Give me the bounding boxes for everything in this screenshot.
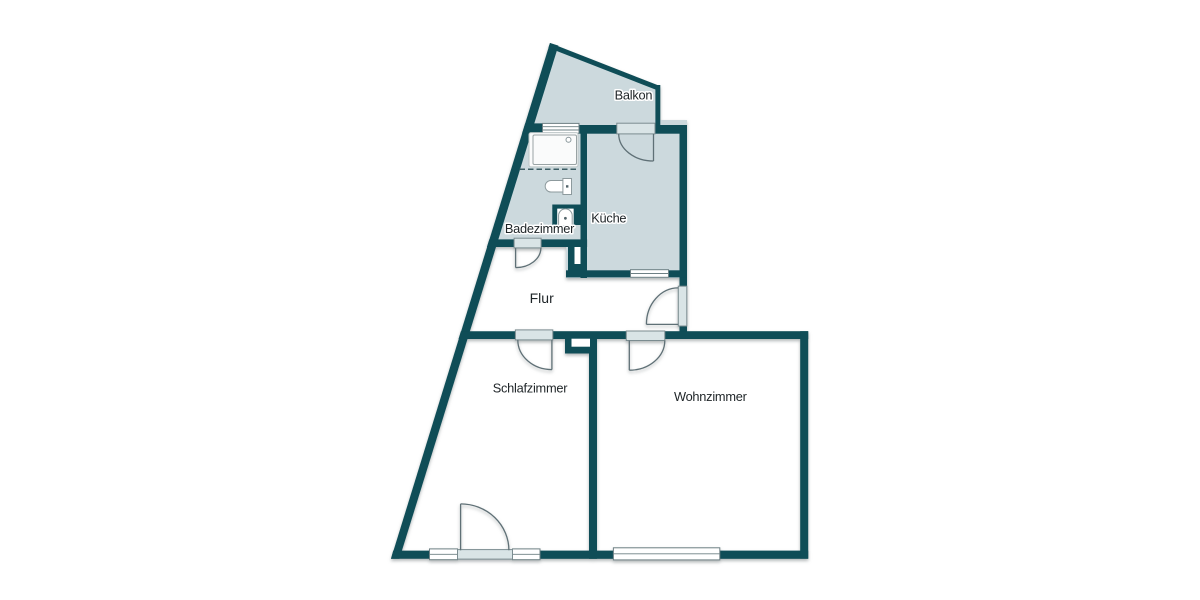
svg-text:Wohnzimmer: Wohnzimmer xyxy=(674,389,748,404)
svg-text:Küche: Küche xyxy=(591,211,626,226)
svg-text:Flur: Flur xyxy=(530,290,554,306)
svg-text:Balkon: Balkon xyxy=(615,88,653,103)
svg-text:Schlafzimmer: Schlafzimmer xyxy=(493,381,568,396)
svg-text:Badezimmer: Badezimmer xyxy=(505,221,575,236)
